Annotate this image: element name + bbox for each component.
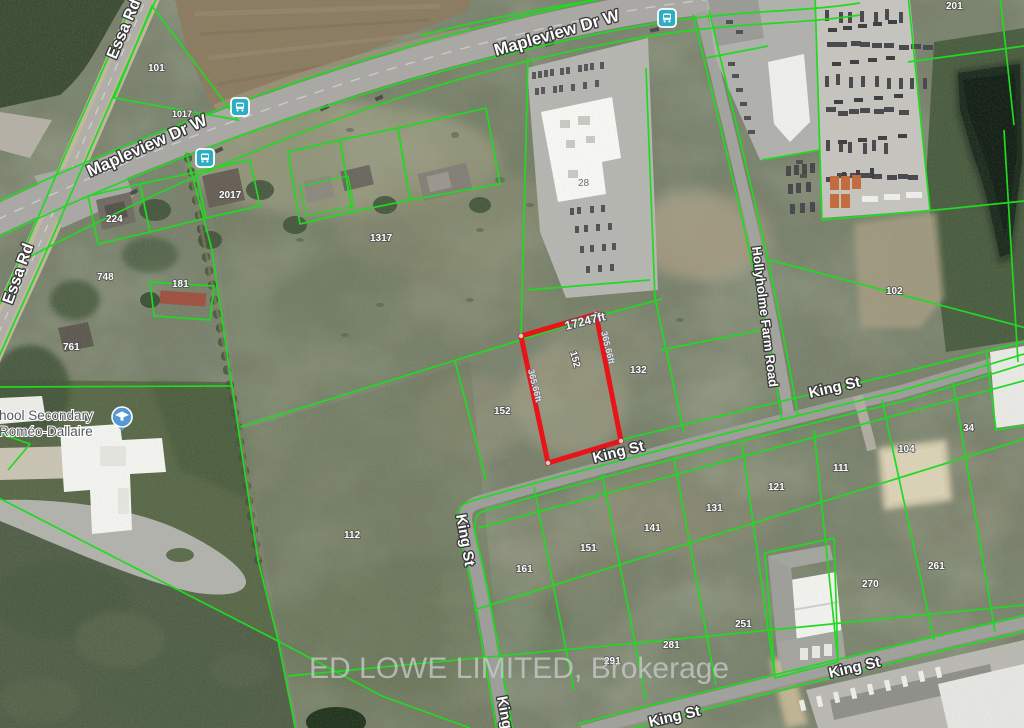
svg-text:281: 281 bbox=[663, 640, 680, 651]
svg-text:101: 101 bbox=[148, 63, 165, 74]
svg-text:151: 151 bbox=[580, 543, 597, 554]
svg-text:161: 161 bbox=[516, 564, 533, 575]
svg-text:ED LOWE LIMITED, Brokerage: ED LOWE LIMITED, Brokerage bbox=[309, 652, 729, 685]
svg-text:131: 131 bbox=[706, 503, 723, 514]
svg-text:104: 104 bbox=[898, 444, 915, 455]
svg-text:132: 132 bbox=[630, 365, 647, 376]
svg-text:1017: 1017 bbox=[172, 109, 192, 119]
svg-text:141: 141 bbox=[644, 523, 661, 534]
svg-text:761: 761 bbox=[63, 342, 80, 353]
svg-text:251: 251 bbox=[735, 619, 752, 630]
svg-text:748: 748 bbox=[97, 272, 114, 283]
svg-text:34: 34 bbox=[963, 423, 975, 434]
svg-text:224: 224 bbox=[106, 214, 123, 225]
svg-text:2017: 2017 bbox=[219, 190, 242, 201]
svg-text:270: 270 bbox=[862, 579, 879, 590]
svg-text:Roméo-Dallaire: Roméo-Dallaire bbox=[0, 424, 93, 439]
svg-text:hool Secondary: hool Secondary bbox=[0, 408, 93, 423]
svg-text:121: 121 bbox=[768, 482, 785, 493]
svg-text:111: 111 bbox=[833, 463, 849, 474]
svg-text:102: 102 bbox=[886, 286, 903, 297]
svg-text:201: 201 bbox=[946, 1, 963, 12]
svg-text:181: 181 bbox=[172, 279, 189, 290]
svg-text:152: 152 bbox=[494, 406, 511, 417]
svg-text:261: 261 bbox=[928, 561, 945, 572]
svg-text:112: 112 bbox=[344, 530, 361, 541]
svg-text:1317: 1317 bbox=[370, 233, 393, 244]
